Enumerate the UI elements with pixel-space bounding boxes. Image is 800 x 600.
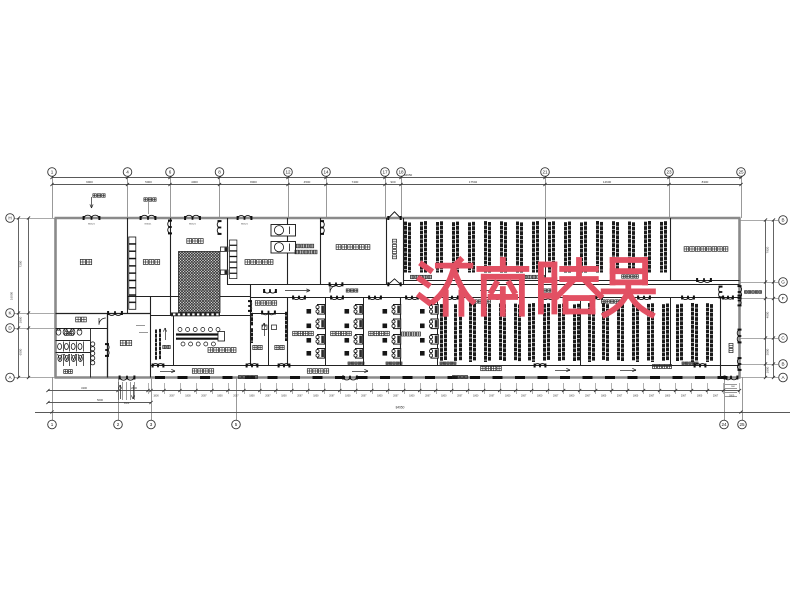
svg-text:M1521: M1521 xyxy=(189,224,196,226)
svg-text:1800: 1800 xyxy=(281,395,287,398)
svg-text:2067: 2067 xyxy=(265,395,271,398)
svg-text:5: 5 xyxy=(235,422,238,427)
svg-text:84950: 84950 xyxy=(396,405,405,409)
svg-text:1800: 1800 xyxy=(441,395,447,398)
svg-text:2067: 2067 xyxy=(329,395,335,398)
svg-text:1800: 1800 xyxy=(633,395,639,398)
svg-text:7920: 7920 xyxy=(766,246,770,253)
svg-text:16000: 16000 xyxy=(10,291,14,300)
svg-text:F: F xyxy=(782,296,785,301)
svg-text:B: B xyxy=(781,218,784,223)
svg-text:8000: 8000 xyxy=(250,180,257,184)
svg-text:6: 6 xyxy=(169,170,172,175)
svg-text:25: 25 xyxy=(739,422,745,427)
svg-text:1800: 1800 xyxy=(249,395,255,398)
svg-text:21: 21 xyxy=(542,170,548,175)
svg-text:14: 14 xyxy=(323,170,329,175)
svg-text:4000: 4000 xyxy=(191,180,198,184)
svg-text:1800: 1800 xyxy=(217,395,223,398)
svg-text:2067: 2067 xyxy=(393,395,399,398)
svg-text:14600: 14600 xyxy=(603,180,612,184)
svg-text:12: 12 xyxy=(285,170,291,175)
svg-text:1800: 1800 xyxy=(19,316,23,323)
svg-text:4300: 4300 xyxy=(81,386,87,390)
svg-text:1800: 1800 xyxy=(665,395,671,398)
svg-text:25: 25 xyxy=(738,170,744,175)
svg-text:2067: 2067 xyxy=(713,395,719,398)
svg-text:1800: 1800 xyxy=(505,395,511,398)
svg-text:6500: 6500 xyxy=(19,348,23,355)
svg-text:M1521: M1521 xyxy=(88,224,95,226)
svg-text:1800: 1800 xyxy=(409,395,415,398)
svg-text:4: 4 xyxy=(126,170,129,175)
svg-text:17: 17 xyxy=(382,170,388,175)
svg-text:9900: 9900 xyxy=(86,180,93,184)
svg-text:1800: 1800 xyxy=(697,395,703,398)
svg-text:H: H xyxy=(8,216,11,221)
svg-text:G: G xyxy=(781,280,785,285)
svg-text:4500: 4500 xyxy=(304,180,311,184)
svg-text:2067: 2067 xyxy=(425,395,431,398)
svg-text:1: 1 xyxy=(51,170,54,175)
svg-text:3: 3 xyxy=(150,422,153,427)
svg-text:3000: 3000 xyxy=(766,348,770,355)
svg-text:900: 900 xyxy=(390,180,395,184)
svg-text:2067: 2067 xyxy=(361,395,367,398)
svg-text:2067: 2067 xyxy=(457,395,463,398)
svg-text:2067: 2067 xyxy=(585,395,591,398)
svg-text:B: B xyxy=(781,362,784,367)
svg-text:5600: 5600 xyxy=(97,398,103,402)
svg-text:2: 2 xyxy=(117,422,120,427)
svg-text:2067: 2067 xyxy=(617,395,623,398)
svg-text:24: 24 xyxy=(721,422,727,427)
svg-text:1800: 1800 xyxy=(601,395,607,398)
svg-text:1800: 1800 xyxy=(766,366,770,373)
svg-text:M1521: M1521 xyxy=(241,224,248,226)
svg-text:4000: 4000 xyxy=(766,311,770,318)
svg-text:8300: 8300 xyxy=(702,180,709,184)
svg-text:2067: 2067 xyxy=(201,395,207,398)
svg-text:2067: 2067 xyxy=(169,395,175,398)
svg-text:8: 8 xyxy=(218,170,221,175)
svg-text:7200: 7200 xyxy=(19,260,23,267)
svg-text:2067: 2067 xyxy=(521,395,527,398)
svg-text:1: 1 xyxy=(51,422,54,427)
svg-text:2067: 2067 xyxy=(681,395,687,398)
svg-text:2067: 2067 xyxy=(297,395,303,398)
svg-text:2067: 2067 xyxy=(553,395,559,398)
svg-text:1800: 1800 xyxy=(185,395,191,398)
svg-text:M1521: M1521 xyxy=(145,224,152,226)
svg-text:2067: 2067 xyxy=(489,395,495,398)
svg-text:17502: 17502 xyxy=(469,180,478,184)
svg-text:1800: 1800 xyxy=(729,395,735,398)
svg-text:1800: 1800 xyxy=(153,395,159,398)
svg-text:1800: 1800 xyxy=(377,395,383,398)
svg-text:84950: 84950 xyxy=(404,173,413,177)
svg-text:1800: 1800 xyxy=(569,395,575,398)
svg-text:1800: 1800 xyxy=(313,395,319,398)
svg-text:5000: 5000 xyxy=(145,180,152,184)
svg-text:5600: 5600 xyxy=(124,402,130,405)
svg-text:1800: 1800 xyxy=(473,395,479,398)
svg-text:1800: 1800 xyxy=(537,395,543,398)
svg-text:2067: 2067 xyxy=(649,395,655,398)
svg-text:1800: 1800 xyxy=(345,395,351,398)
svg-text:7400: 7400 xyxy=(352,180,359,184)
svg-text:23: 23 xyxy=(666,170,672,175)
